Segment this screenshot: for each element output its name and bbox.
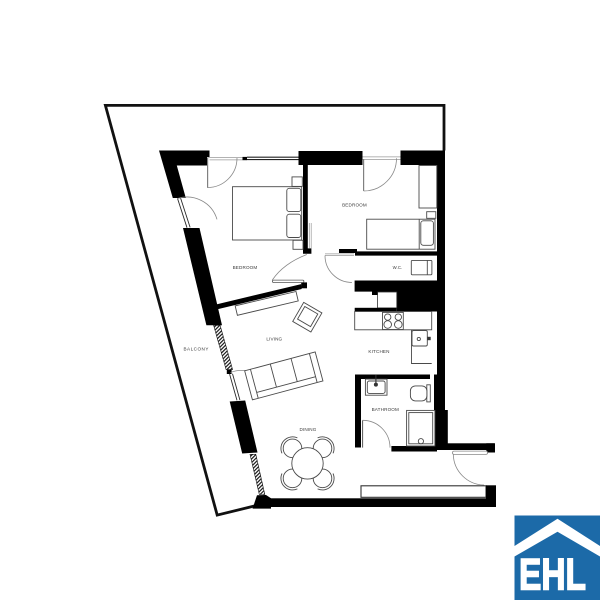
svg-text:BATHROOM: BATHROOM	[372, 407, 399, 412]
svg-text:DINING: DINING	[300, 427, 317, 432]
svg-text:BEDROOM: BEDROOM	[342, 202, 367, 207]
svg-text:LIVING: LIVING	[266, 337, 282, 342]
svg-text:W.C.: W.C.	[393, 265, 403, 270]
svg-text:EHL: EHL	[519, 551, 586, 600]
svg-text:KITCHEN: KITCHEN	[368, 349, 389, 354]
svg-text:BEDROOM: BEDROOM	[233, 265, 258, 270]
svg-text:BALCONY: BALCONY	[183, 346, 208, 351]
